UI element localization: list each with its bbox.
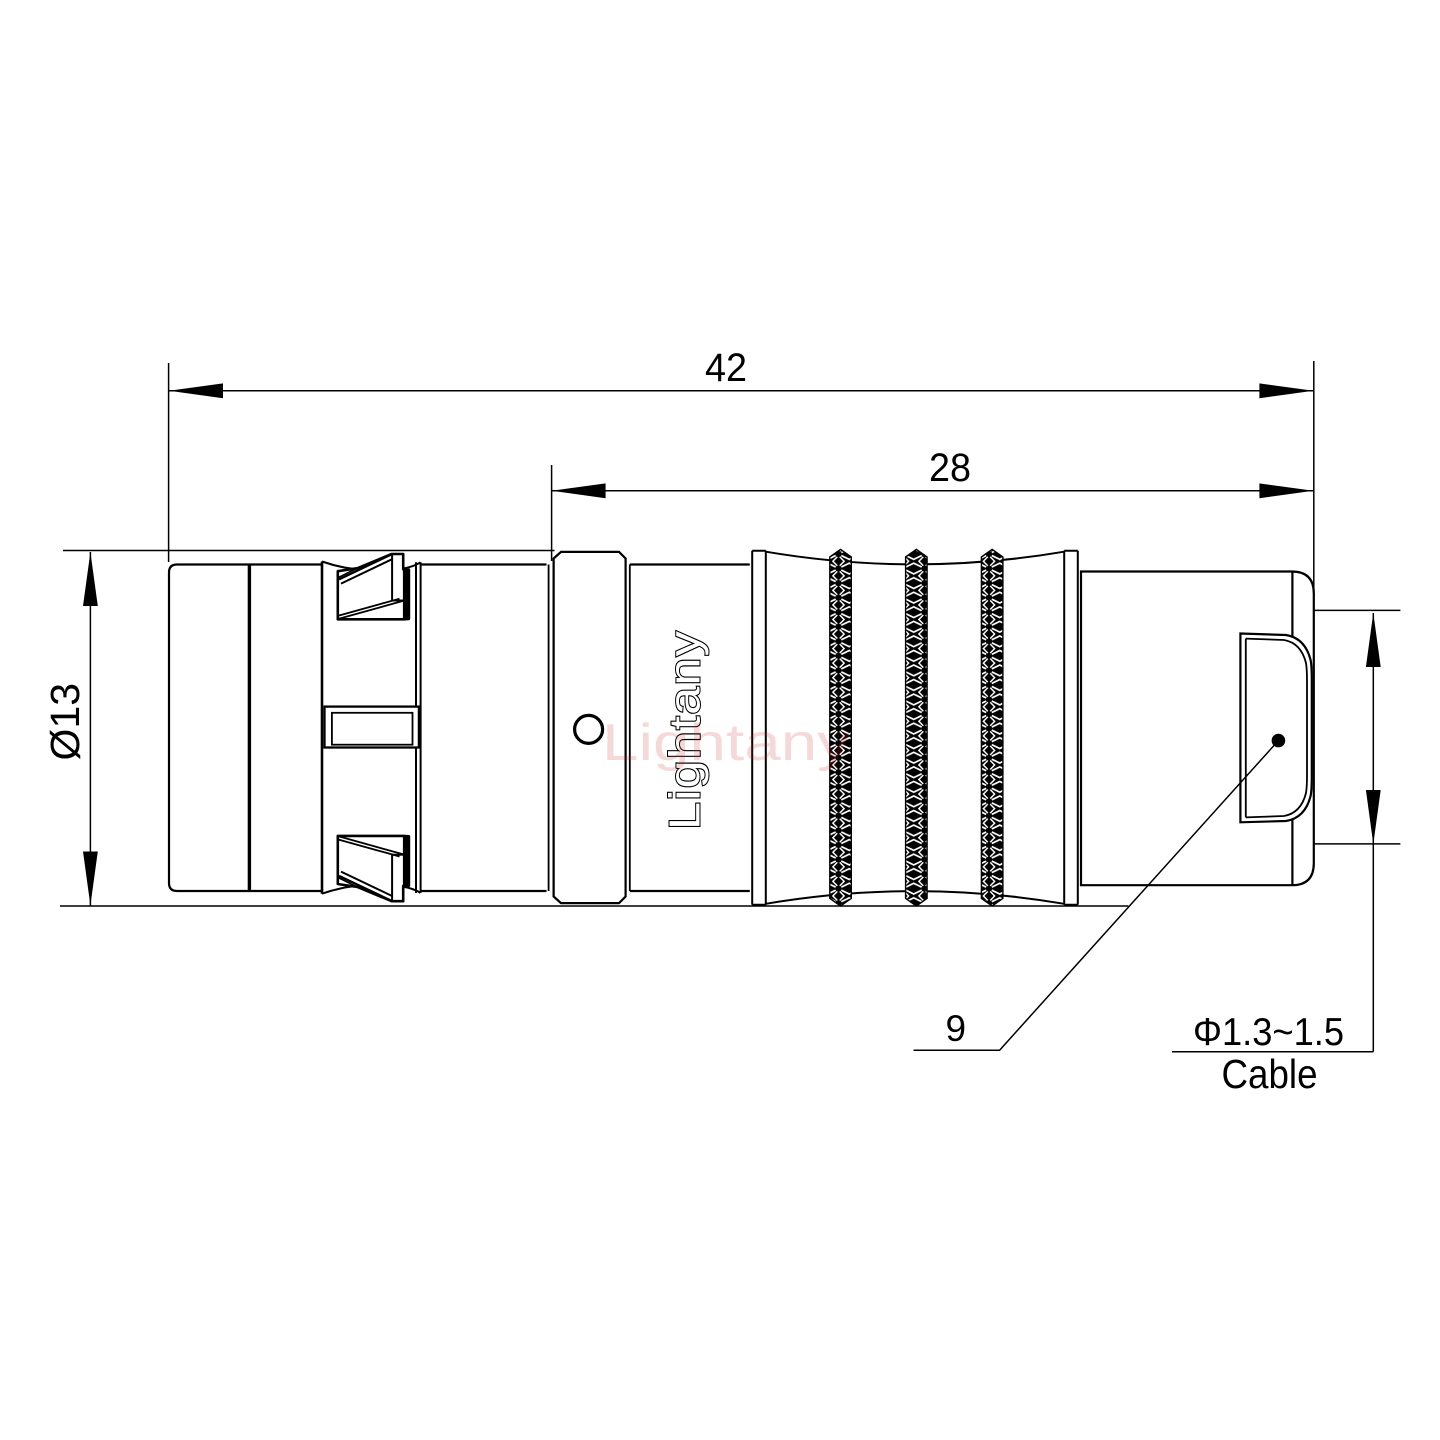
svg-text:Cable: Cable <box>1222 1051 1318 1097</box>
svg-text:Ø13: Ø13 <box>42 683 88 761</box>
svg-text:42: 42 <box>705 346 747 390</box>
svg-text:28: 28 <box>929 446 971 490</box>
svg-text:9: 9 <box>946 1008 967 1049</box>
svg-text:Φ1.3~1.5: Φ1.3~1.5 <box>1193 1011 1344 1054</box>
svg-text:Lightany: Lightany <box>602 714 850 772</box>
